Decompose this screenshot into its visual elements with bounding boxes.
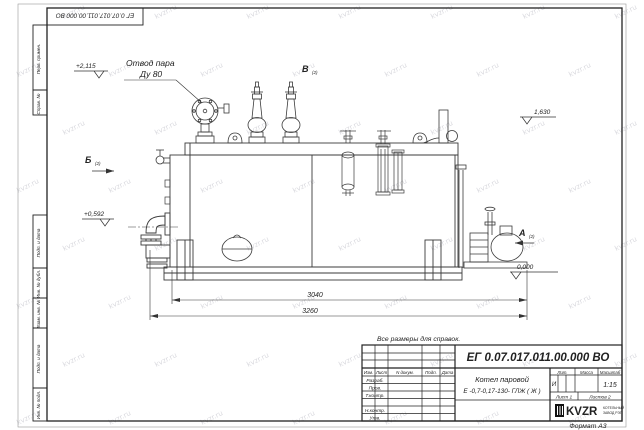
dimension-arrows bbox=[150, 298, 527, 318]
tb-lit-value: И bbox=[552, 382, 557, 388]
level-marks bbox=[74, 71, 558, 279]
boiler-body bbox=[164, 143, 462, 280]
view-v-label: В bbox=[302, 64, 309, 74]
tb-name-line1: Котел паровой bbox=[475, 375, 530, 384]
stamp-vzam-inv: Взам. инв. № bbox=[36, 300, 41, 328]
steam-outlet-valve bbox=[192, 98, 229, 143]
lifting-lugs bbox=[228, 133, 427, 143]
tb-sheet-count: Листов 2 bbox=[588, 395, 611, 401]
stamp-sprav-no: Справ. № bbox=[36, 94, 41, 115]
reference-note: Все размеры для справок. bbox=[377, 335, 460, 343]
steam-outlet-callout: Отвод пара Ду 80 bbox=[124, 58, 202, 103]
view-v-marker: В (2) bbox=[302, 64, 318, 75]
rear-stub-pipe bbox=[422, 110, 458, 143]
stamp-podp-data-1: Подп. и дата bbox=[36, 228, 41, 257]
tb-sheet-number: Лист 1 bbox=[555, 395, 573, 401]
tb-row-razrab: Разраб. bbox=[366, 378, 383, 384]
view-a-ref: (2) bbox=[529, 234, 535, 239]
tb-row-prov: Пров. bbox=[369, 386, 382, 392]
view-a-label: А bbox=[518, 228, 526, 238]
view-b-ref: (2) bbox=[95, 161, 101, 166]
drawing-sheet: kvzr.rukvzr.rukvzr.rukvzr.rukvzr.rukvzr.… bbox=[0, 0, 644, 430]
view-b-marker: Б (2) bbox=[85, 155, 114, 174]
tb-row-utv: Утв. bbox=[370, 416, 381, 422]
stamp-podp-data-2: Подп. и дата bbox=[36, 344, 41, 373]
left-wall-valve bbox=[156, 150, 170, 164]
steam-outlet-text-2: Ду 80 bbox=[139, 69, 162, 79]
tb-header-masshtab: Масштаб bbox=[600, 370, 621, 375]
tb-header-ndokum: N докум. bbox=[396, 370, 414, 375]
tb-header-massa: Масса bbox=[580, 370, 594, 375]
level-burner: +0,592 bbox=[84, 211, 104, 218]
tb-header-izm: Изм. bbox=[364, 370, 373, 375]
dim-boiler-length: 3040 bbox=[307, 292, 323, 299]
tb-designation: ЕГ 0.07.017.011.00.000 ВО bbox=[467, 352, 610, 364]
tb-row-tkontr: Т.контр. bbox=[365, 393, 384, 399]
view-v-ref: (2) bbox=[312, 70, 318, 75]
boiler-general-view-drawing: Перв. примен. Справ. № Подп. и дата Инв.… bbox=[0, 0, 644, 430]
top-designation-text: ЕГ 0.07.017.011.00.000 ВО bbox=[56, 12, 135, 19]
tb-scale-value: 1:15 bbox=[603, 382, 617, 389]
level-ground: 0,000 bbox=[517, 264, 534, 271]
steam-outlet-text-1: Отвод пара bbox=[126, 58, 175, 68]
tb-header-data: Дата bbox=[441, 370, 454, 375]
sidebar-stamp-labels: Перв. примен. Справ. № Подп. и дата Инв.… bbox=[36, 44, 41, 420]
manhole bbox=[222, 235, 252, 261]
view-b-label: Б bbox=[85, 155, 92, 165]
level-right: 1,630 bbox=[534, 109, 551, 116]
stamp-inv-dubl: Инв. № дубл. bbox=[36, 270, 41, 298]
stamp-inv-podl: Инв. № подл. bbox=[36, 391, 41, 420]
tb-name-line2: Е -0,7-0,17-130- ГЛЖ ( Ж ) bbox=[463, 388, 540, 395]
kvzr-caption-2: ЗАВОД РЭП bbox=[603, 411, 623, 415]
top-designation-stamp: ЕГ 0.07.017.011.00.000 ВО bbox=[47, 8, 143, 25]
dim-overall-length: 3260 bbox=[302, 308, 318, 315]
format-label: Формат А3 bbox=[569, 423, 606, 430]
tb-header-lit: Лит. bbox=[556, 370, 567, 375]
safety-valve-1 bbox=[248, 82, 266, 143]
tb-row-nkontr: Н.контр. bbox=[365, 408, 385, 414]
burner-assembly bbox=[128, 213, 180, 268]
feed-pump-unit bbox=[456, 165, 527, 268]
water-gauge-group bbox=[340, 130, 404, 196]
left-wall-stubs bbox=[165, 180, 170, 204]
kvzr-logo-text: KVZR bbox=[566, 406, 598, 418]
tb-header-podp: Подп. bbox=[425, 370, 437, 375]
kvzr-caption-1: КОТЕЛЬНЫЙ bbox=[603, 406, 625, 410]
stamp-perv-primen: Перв. примен. bbox=[36, 44, 41, 75]
kvzr-logo: KVZR КОТЕЛЬНЫЙ ЗАВОД РЭП bbox=[555, 404, 625, 418]
safety-valve-2 bbox=[282, 82, 300, 143]
tb-header-list: Лист bbox=[375, 370, 388, 375]
level-top: +2,115 bbox=[76, 63, 96, 70]
dimension-lines bbox=[150, 250, 527, 320]
